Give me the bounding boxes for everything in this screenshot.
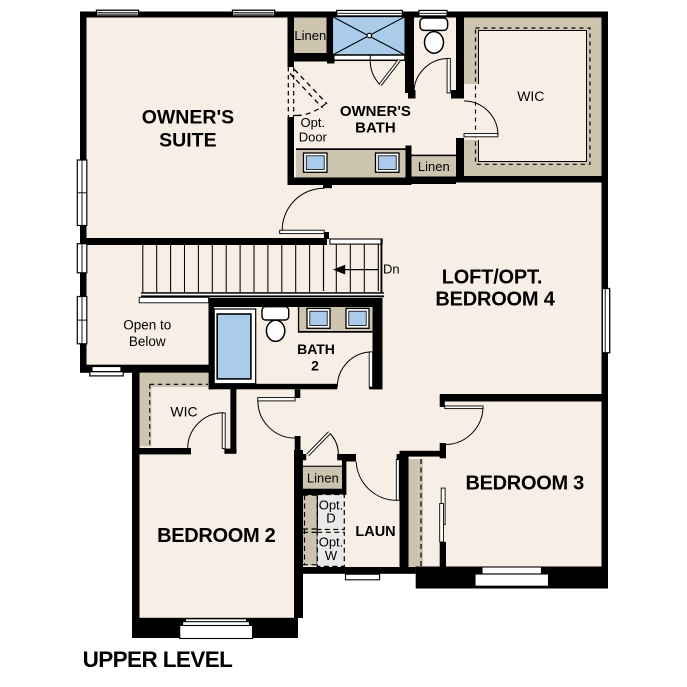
svg-text:LAUN: LAUN bbox=[355, 524, 395, 540]
svg-text:WIC: WIC bbox=[170, 404, 197, 420]
svg-text:Opt.: Opt. bbox=[301, 115, 326, 130]
svg-text:BATH: BATH bbox=[355, 120, 396, 137]
svg-text:Below: Below bbox=[129, 334, 166, 349]
svg-text:OWNER'S: OWNER'S bbox=[142, 107, 234, 129]
svg-text:OWNER'S: OWNER'S bbox=[340, 103, 411, 120]
svg-text:2: 2 bbox=[311, 358, 319, 374]
svg-text:BATH: BATH bbox=[297, 341, 335, 357]
svg-text:Linen: Linen bbox=[307, 471, 339, 486]
svg-text:LOFT/OPT.: LOFT/OPT. bbox=[442, 266, 542, 288]
svg-text:Open to: Open to bbox=[123, 318, 171, 333]
svg-text:SUITE: SUITE bbox=[159, 129, 216, 151]
svg-text:Door: Door bbox=[299, 130, 328, 145]
svg-text:WIC: WIC bbox=[517, 88, 544, 104]
svg-text:Linen: Linen bbox=[418, 159, 450, 174]
svg-text:BEDROOM 2: BEDROOM 2 bbox=[157, 525, 276, 547]
svg-text:BEDROOM 3: BEDROOM 3 bbox=[465, 473, 584, 495]
svg-text:W: W bbox=[325, 548, 338, 563]
svg-text:D: D bbox=[326, 511, 335, 526]
svg-text:UPPER LEVEL: UPPER LEVEL bbox=[83, 647, 234, 672]
svg-text:Dn: Dn bbox=[383, 262, 400, 277]
svg-text:Linen: Linen bbox=[294, 28, 326, 43]
svg-text:BEDROOM 4: BEDROOM 4 bbox=[435, 288, 555, 310]
